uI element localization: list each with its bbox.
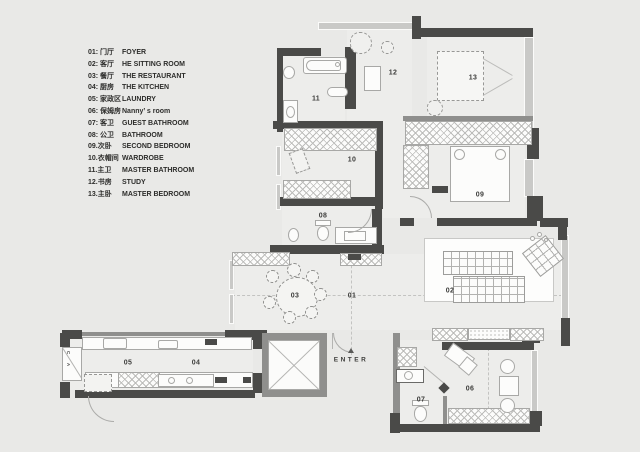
bathtub-drain-icon (335, 62, 340, 67)
room-label-02: 02 (446, 288, 454, 295)
door-leaf (332, 333, 333, 349)
closet (405, 121, 532, 145)
kitchen-cabinet (118, 372, 160, 388)
elevator-shaft (320, 333, 327, 397)
burner-icon (186, 377, 193, 384)
fixture-icon (348, 254, 361, 260)
door-arc (88, 396, 114, 422)
room-label-04: 04 (192, 360, 200, 367)
plant-icon (427, 100, 443, 116)
sofa (453, 276, 525, 303)
side-table (499, 376, 519, 396)
sink-icon (283, 66, 295, 79)
wall (60, 333, 70, 347)
closet (284, 128, 377, 151)
room-label-12: 12 (389, 70, 397, 77)
dining-chair (287, 263, 301, 277)
room-label-13: 13 (469, 75, 477, 82)
sideboard (232, 252, 290, 266)
pillow (495, 149, 506, 160)
closet (448, 408, 530, 424)
closet (283, 180, 351, 199)
cabinet (340, 253, 382, 266)
room-label-10: 10 (348, 157, 356, 164)
elevator-shaft (262, 333, 326, 340)
window (276, 146, 281, 176)
bench (327, 87, 348, 97)
plant-icon (350, 32, 372, 54)
window (524, 159, 534, 197)
desk (364, 66, 381, 91)
sink-icon (286, 106, 295, 118)
sink-icon (158, 340, 178, 349)
washer-icon (62, 347, 82, 381)
window (318, 22, 414, 30)
pillow (454, 149, 465, 160)
closet (403, 145, 429, 189)
wall (561, 318, 570, 346)
dining-chair (283, 311, 296, 324)
toilet-icon (317, 226, 329, 241)
room-label-03: 03 (291, 293, 299, 300)
room-label-06: 06 (466, 386, 474, 393)
room-label-01: 01 (348, 293, 356, 300)
shower (397, 347, 417, 367)
wall (398, 424, 540, 432)
room-label-09: 09 (476, 192, 484, 199)
dining-chair (314, 288, 327, 301)
dining-chair (266, 270, 279, 283)
room-label-08: 08 (319, 213, 327, 220)
elevator-shaft (268, 340, 320, 390)
stool (500, 398, 515, 413)
wall (522, 28, 533, 37)
room-label-07: 07 (417, 397, 425, 404)
window (561, 235, 569, 319)
wall (437, 218, 537, 226)
stool (500, 359, 515, 374)
sink-icon (103, 338, 127, 349)
fixture-icon (215, 377, 227, 383)
washer-label: C (66, 351, 71, 354)
tv-cabinet (468, 328, 510, 340)
floor-plan: C A 01 02 03 04 05 06 07 08 09 10 11 12 … (0, 0, 640, 452)
dining-chair (306, 270, 319, 283)
wall (60, 382, 70, 398)
wall (400, 218, 414, 226)
wall (345, 47, 356, 109)
plant-icon (381, 41, 394, 54)
window (229, 294, 234, 324)
fixture-icon (205, 339, 217, 345)
washer-label: A (66, 363, 71, 366)
decor-dot (544, 238, 548, 242)
sofa (443, 251, 513, 275)
room-label-11: 11 (312, 96, 320, 103)
wall (432, 186, 448, 193)
dining-chair (305, 306, 318, 319)
decor-dot (530, 236, 535, 241)
toilet-icon (414, 406, 427, 422)
decor-dot (537, 232, 542, 237)
wall (418, 28, 523, 37)
wall (277, 48, 321, 56)
sink-icon (404, 371, 413, 380)
dining-chair (263, 296, 276, 309)
burner-icon (168, 377, 175, 384)
tv-cabinet (510, 328, 544, 341)
fixture-icon (243, 377, 251, 383)
tv-cabinet (432, 328, 468, 341)
page: { "colors":{ "background":"#e9e9e7","wal… (0, 0, 640, 452)
wall (528, 411, 542, 426)
wall (558, 218, 567, 240)
room-label-05: 05 (124, 360, 132, 367)
appliance (84, 374, 112, 392)
window (531, 350, 538, 412)
sink-icon (288, 228, 299, 242)
enter-arrow-icon (348, 348, 354, 353)
enter-label: ENTER (334, 357, 369, 364)
elevator-shaft (262, 390, 326, 397)
